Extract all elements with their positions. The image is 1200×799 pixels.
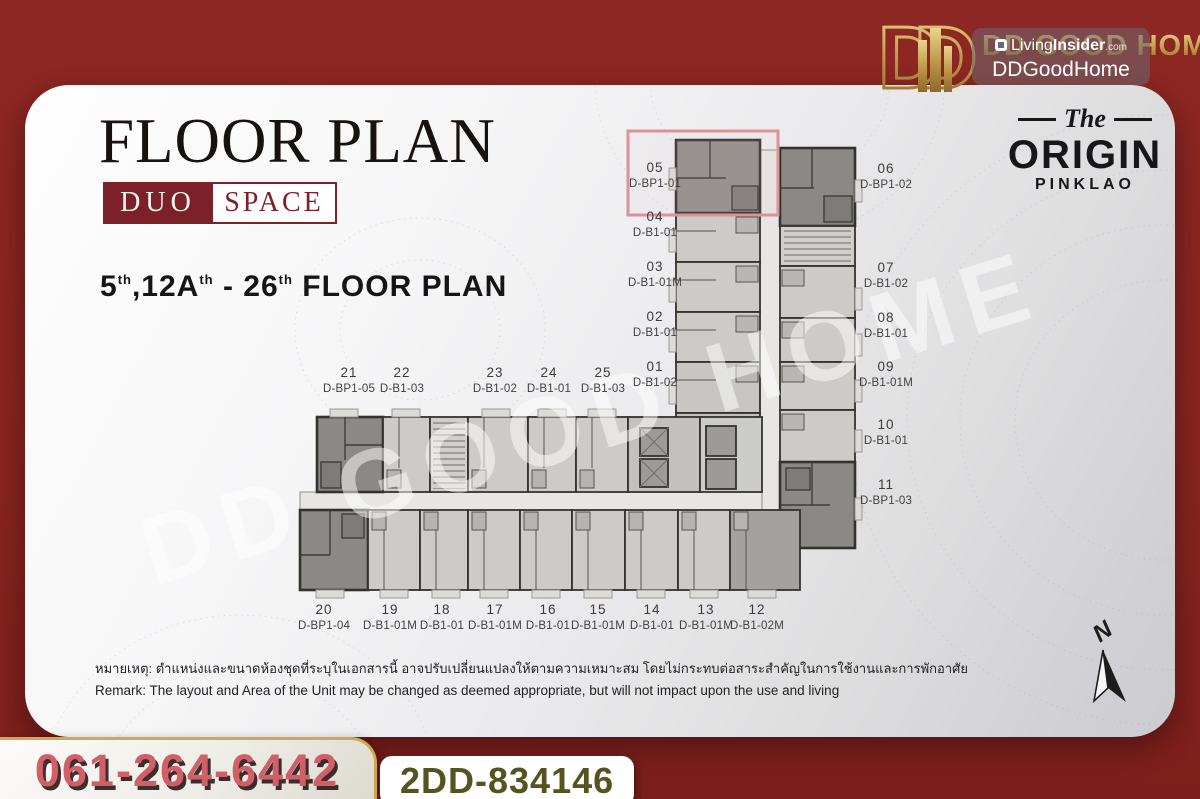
unit-label-02: 02D-B1-01 xyxy=(600,309,710,339)
phone-number: 061-264-6442 xyxy=(35,745,339,797)
unit-label-10: 10D-B1-01 xyxy=(831,417,941,447)
north-arrow-icon: N xyxy=(1088,615,1126,702)
remark-block: หมายเหตุ: ตำแหน่งและขนาดห้องชุดที่ระบุใน… xyxy=(95,658,968,702)
listing-code-box: 2DD-834146 xyxy=(380,756,634,799)
unit-label-03: 03D-B1-01M xyxy=(600,259,710,289)
unit-label-12: 12D-B1-02M xyxy=(702,602,812,632)
remark-thai: หมายเหตุ: ตำแหน่งและขนาดห้องชุดที่ระบุใน… xyxy=(95,658,968,680)
unit-label-06: 06D-BP1-02 xyxy=(831,161,941,191)
brochure-page: D D DD GOOD HOME LivingInsider.com DDGoo… xyxy=(0,0,1200,799)
unit-label-05: 05D-BP1-01 xyxy=(600,160,710,190)
unit-label-08: 08D-B1-01 xyxy=(831,310,941,340)
unit-label-09: 09D-B1-01M xyxy=(831,359,941,389)
unit-label-25: 25D-B1-03 xyxy=(548,365,658,395)
phone-bar: 061-264-6442 xyxy=(0,737,377,799)
unit-label-04: 04D-B1-01 xyxy=(600,209,710,239)
remark-english: Remark: The layout and Area of the Unit … xyxy=(95,680,968,702)
north-label: N xyxy=(1088,615,1118,647)
unit-label-11: 11D-BP1-03 xyxy=(831,477,941,507)
listing-code: 2DD-834146 xyxy=(400,760,614,799)
unit-label-07: 07D-B1-02 xyxy=(831,260,941,290)
